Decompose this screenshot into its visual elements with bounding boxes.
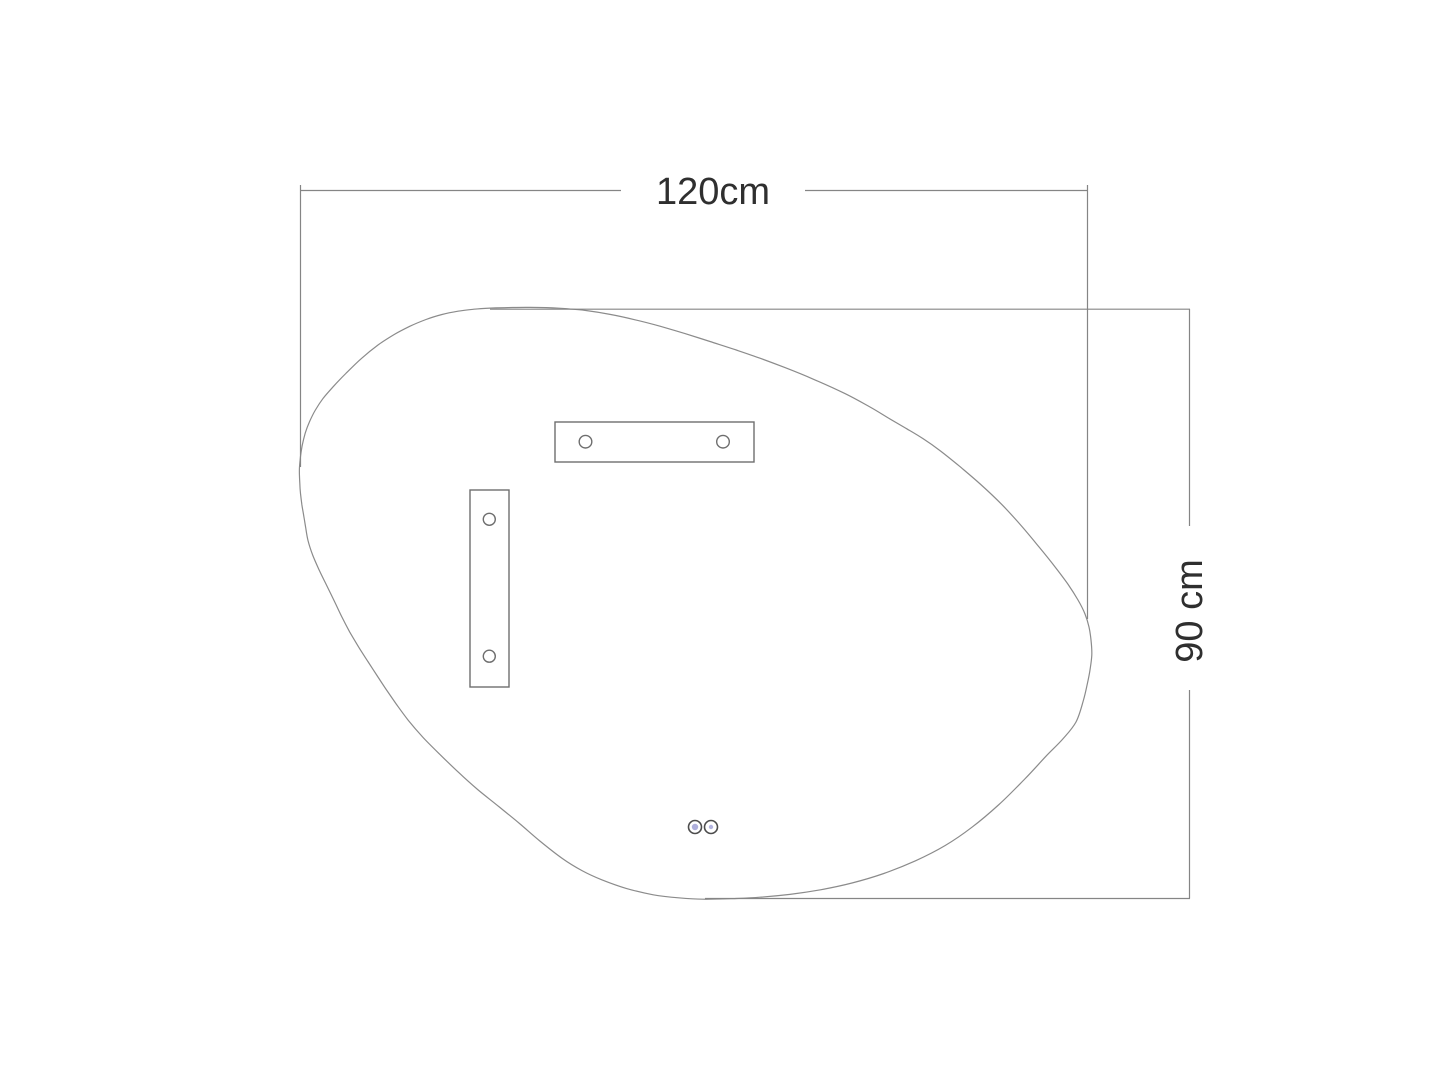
svg-text:90 cm: 90 cm: [1169, 559, 1211, 662]
svg-text:120cm: 120cm: [656, 171, 770, 213]
